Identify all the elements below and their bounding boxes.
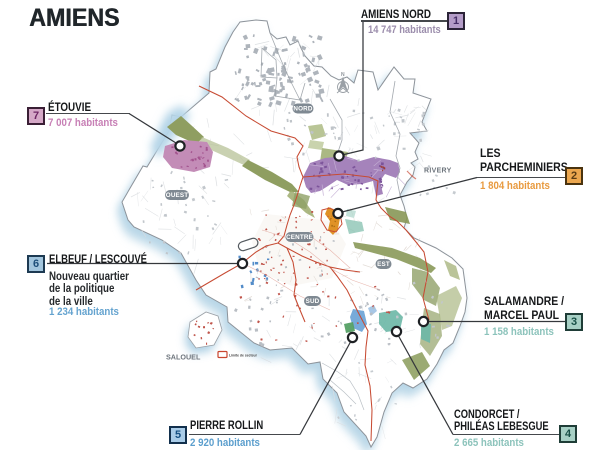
svg-text:CENTRE: CENTRE — [286, 234, 313, 241]
svg-text:EST: EST — [377, 261, 390, 268]
svg-text:Limite de secteur: Limite de secteur — [229, 354, 258, 358]
svg-text:RIVERY: RIVERY — [424, 168, 452, 175]
svg-text:SUD: SUD — [306, 298, 320, 305]
svg-text:SALOUEL: SALOUEL — [166, 353, 201, 362]
svg-text:NORD: NORD — [293, 106, 312, 113]
svg-text:OUEST: OUEST — [166, 192, 188, 199]
svg-text:N: N — [341, 72, 345, 78]
